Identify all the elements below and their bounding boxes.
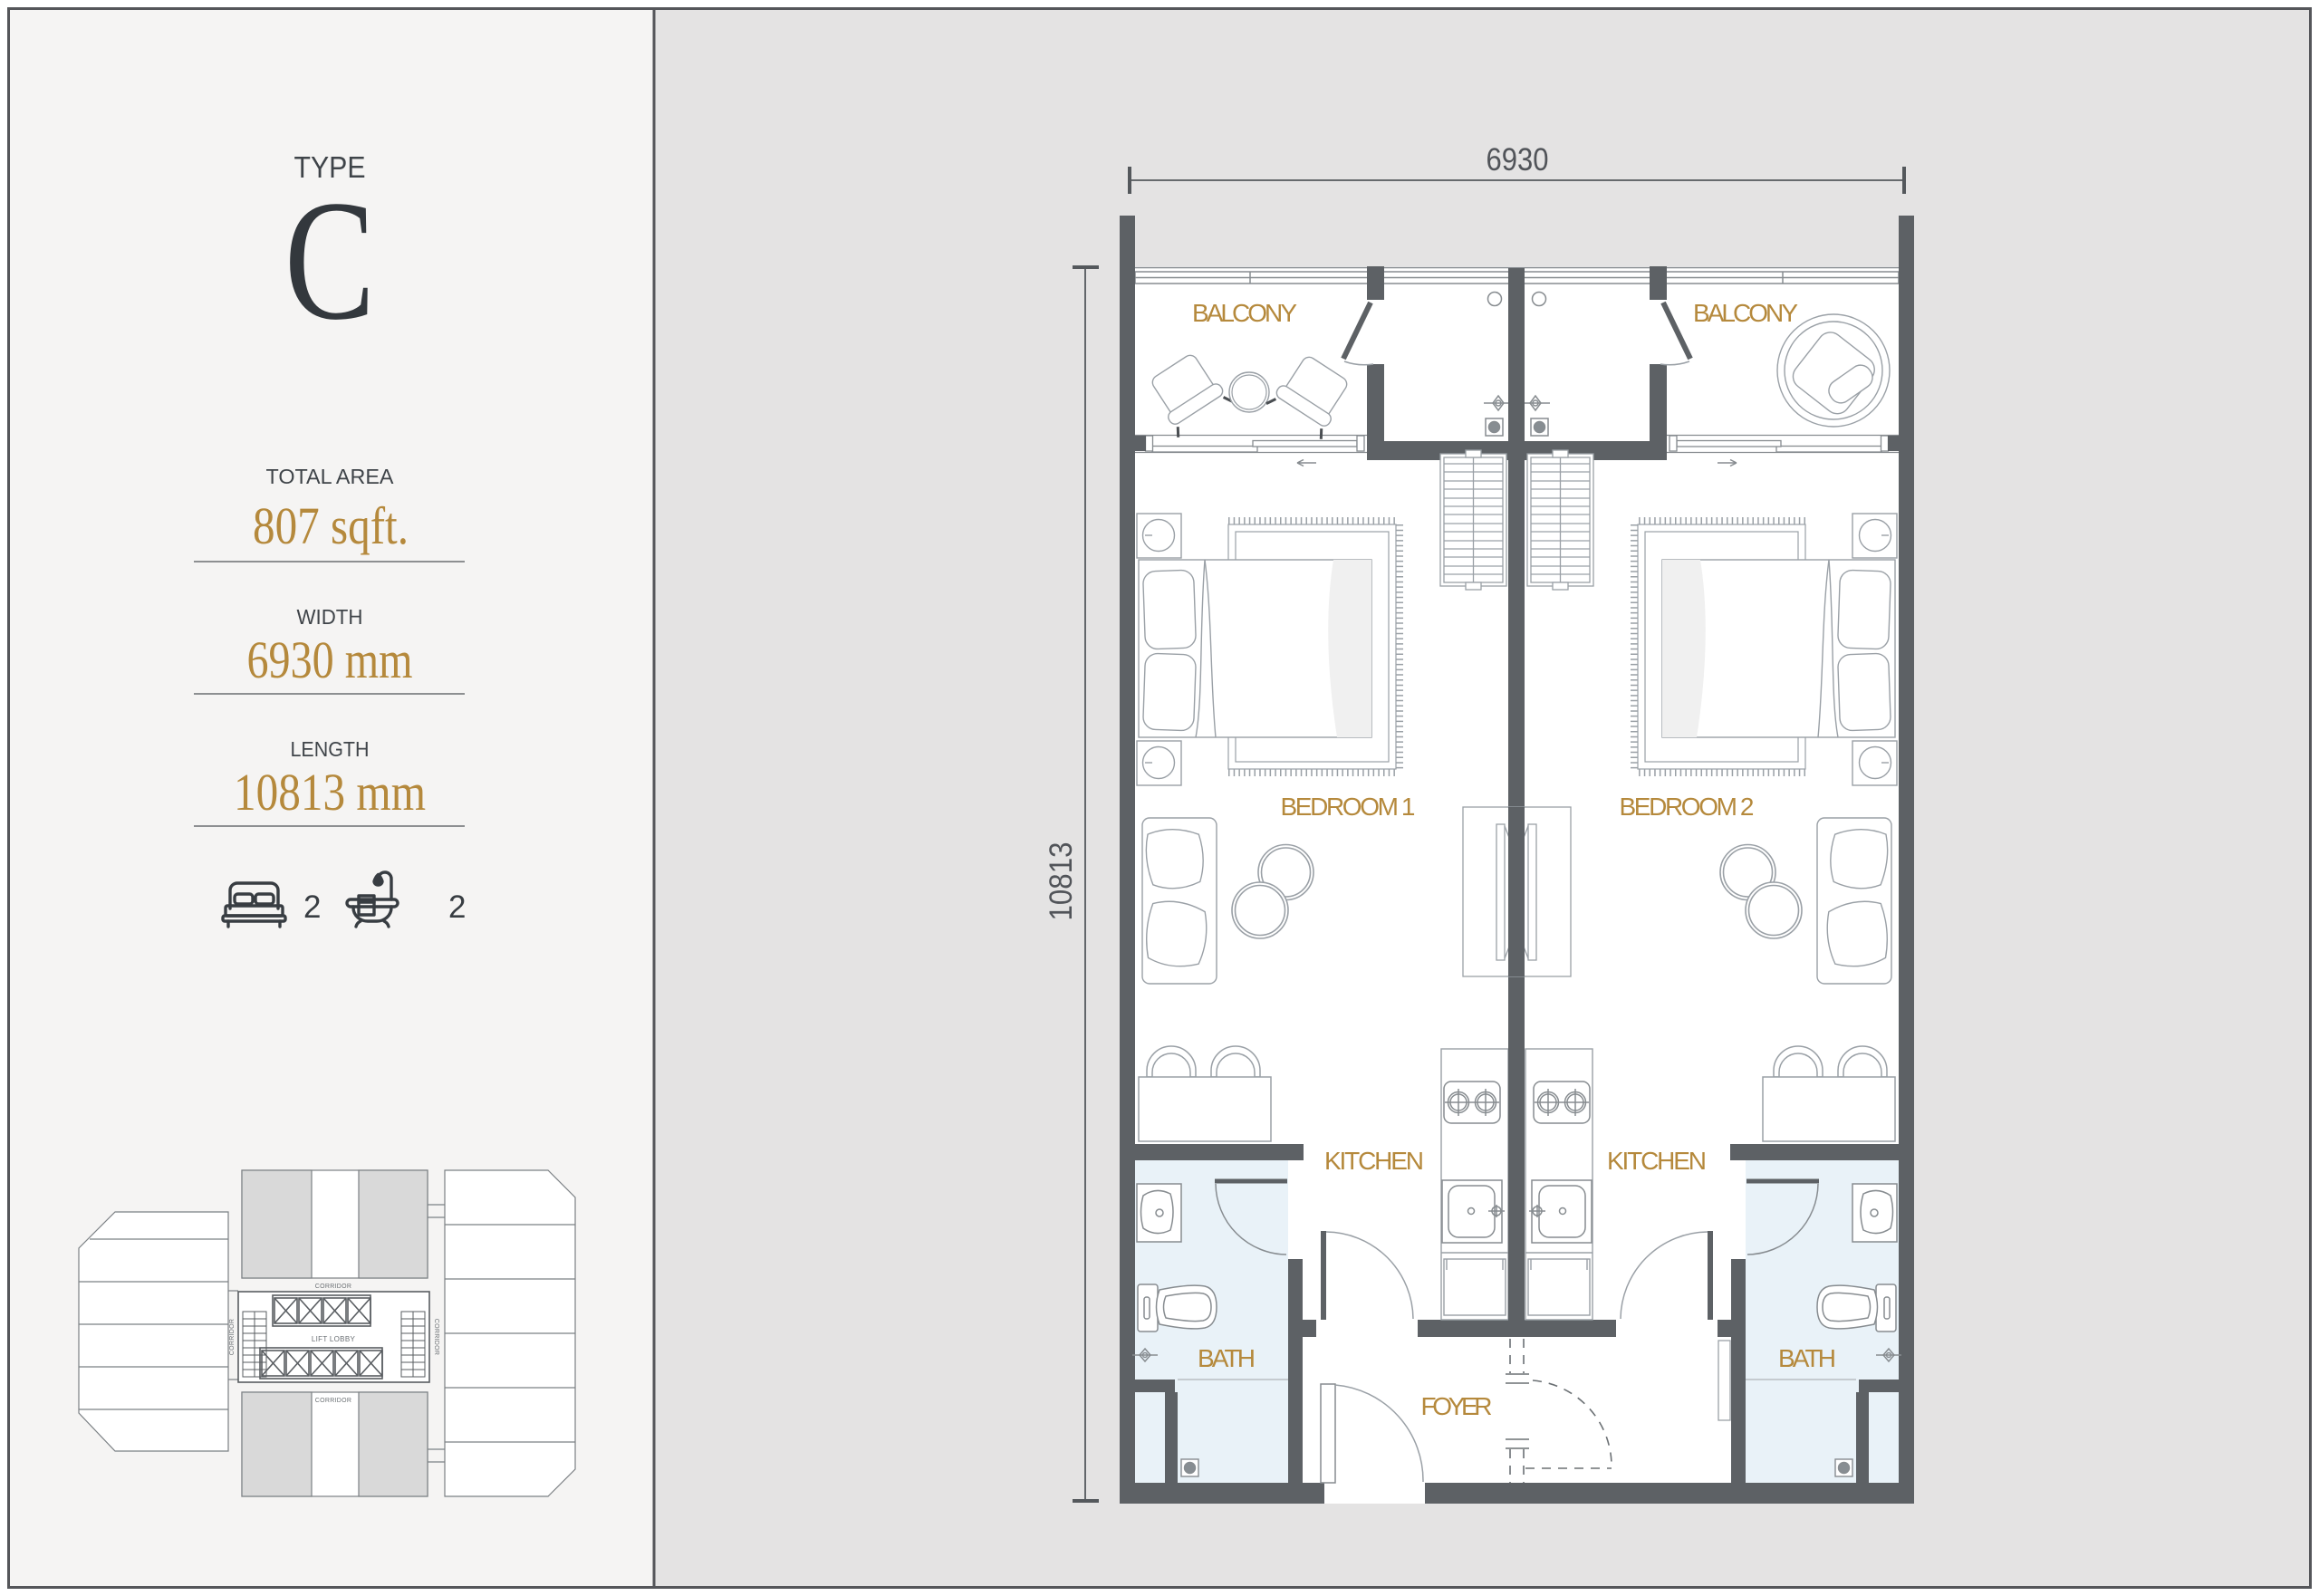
svg-text:2: 2 [448,889,466,925]
svg-text:6930 mm: 6930 mm [247,630,413,689]
svg-text:BALCONY: BALCONY [1192,299,1297,327]
svg-text:CORRIDOR: CORRIDOR [229,1319,236,1356]
svg-text:WIDTH: WIDTH [297,605,363,629]
svg-text:CORRIDOR: CORRIDOR [315,1284,352,1290]
svg-text:2: 2 [303,889,321,925]
svg-text:CORRIDOR: CORRIDOR [315,1398,352,1404]
svg-text:LIFT LOBBY: LIFT LOBBY [312,1335,356,1343]
svg-text:BEDROOM 2: BEDROOM 2 [1620,793,1755,821]
svg-text:BATH: BATH [1198,1344,1256,1372]
svg-text:LENGTH: LENGTH [291,737,370,761]
svg-text:C: C [284,166,375,356]
svg-text:KITCHEN: KITCHEN [1607,1147,1707,1175]
svg-text:10813: 10813 [1044,842,1079,921]
svg-text:10813 mm: 10813 mm [234,763,426,822]
svg-text:BATH: BATH [1778,1344,1836,1372]
svg-text:BALCONY: BALCONY [1693,299,1798,327]
svg-text:KITCHEN: KITCHEN [1324,1147,1424,1175]
svg-text:TOTAL AREA: TOTAL AREA [266,465,395,488]
svg-text:6930: 6930 [1487,142,1549,178]
svg-text:CORRIDOR: CORRIDOR [433,1319,439,1356]
svg-text:FOYER: FOYER [1421,1392,1493,1420]
svg-text:807 sqft.: 807 sqft. [253,496,409,555]
svg-text:BEDROOM 1: BEDROOM 1 [1281,793,1416,821]
